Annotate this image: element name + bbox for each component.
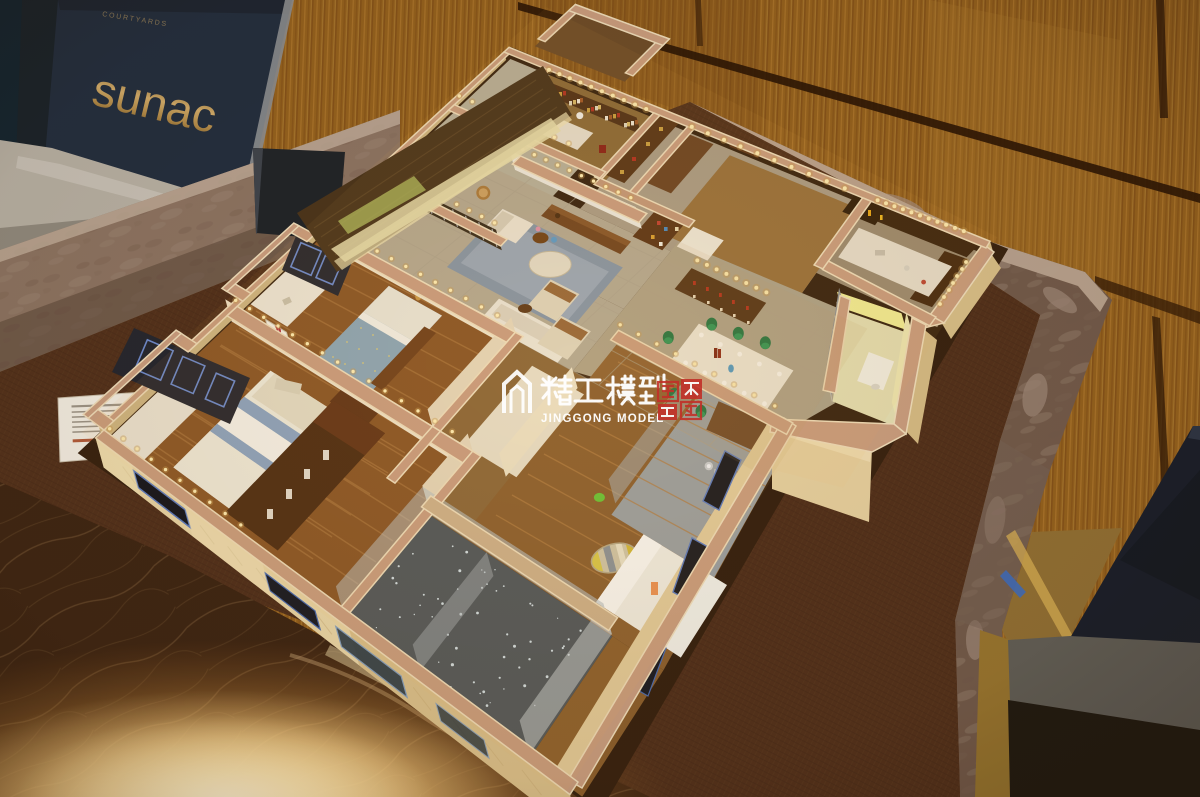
svg-text:JINGGONG MODEL: JINGGONG MODEL — [541, 413, 665, 425]
